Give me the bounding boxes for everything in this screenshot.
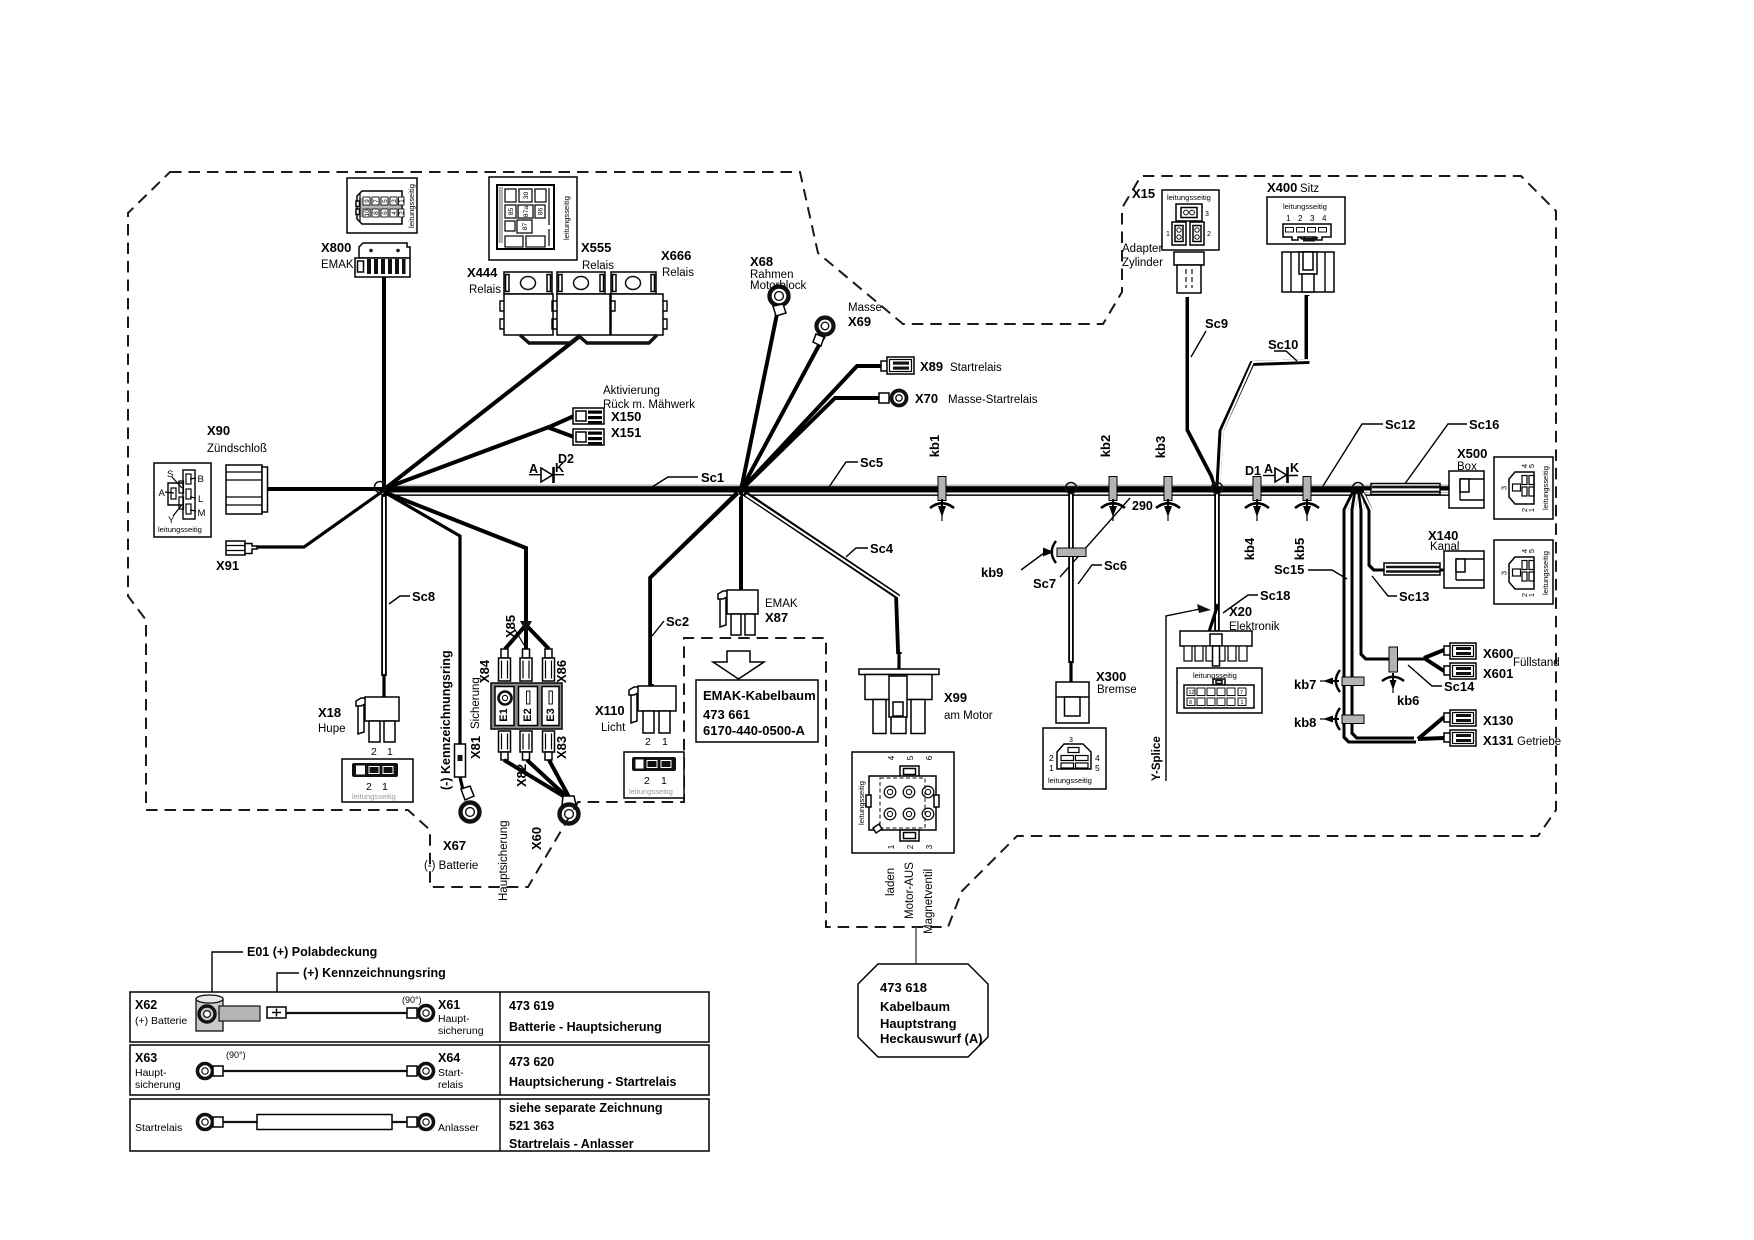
svg-text:4: 4 (1095, 753, 1100, 763)
svg-text:Sc8: Sc8 (412, 589, 435, 604)
svg-text:4: 4 (1322, 214, 1327, 223)
svg-text:kb3: kb3 (1153, 436, 1168, 458)
svg-text:E1: E1 (498, 708, 510, 721)
svg-text:473 619: 473 619 (509, 999, 554, 1013)
svg-text:kb4: kb4 (1242, 537, 1257, 560)
svg-text:E2: E2 (522, 708, 534, 721)
svg-text:1: 1 (661, 775, 667, 787)
svg-text:Sitz: Sitz (1300, 183, 1319, 195)
svg-text:X600: X600 (1483, 646, 1513, 661)
svg-text:3: 3 (925, 844, 934, 849)
svg-text:5: 5 (906, 755, 915, 760)
svg-text:kb5: kb5 (1292, 538, 1307, 560)
svg-text:X62: X62 (135, 998, 157, 1012)
svg-text:B: B (198, 474, 204, 485)
svg-text:473 620: 473 620 (509, 1055, 554, 1069)
svg-text:X60: X60 (529, 827, 544, 850)
svg-text:86: 86 (538, 208, 545, 216)
svg-text:Sc15: Sc15 (1274, 562, 1304, 577)
svg-text:Relais: Relais (469, 284, 501, 296)
svg-text:Sicherung: Sicherung (470, 677, 482, 729)
svg-text:X110: X110 (595, 703, 625, 718)
svg-text:5: 5 (1095, 763, 1100, 773)
svg-text:X86: X86 (554, 660, 569, 683)
svg-text:1: 1 (887, 844, 896, 849)
svg-text:290: 290 (1132, 499, 1153, 513)
svg-text:Licht: Licht (601, 722, 626, 734)
svg-text:leitungsseitig: leitungsseitig (1283, 202, 1327, 211)
svg-text:Batterie - Hauptsicherung: Batterie - Hauptsicherung (509, 1020, 662, 1034)
svg-text:S: S (167, 469, 173, 480)
svg-text:Start-: Start- (438, 1067, 464, 1079)
svg-text:leitungsseitig: leitungsseitig (1048, 776, 1092, 785)
svg-text:leitungsseitig: leitungsseitig (1167, 193, 1211, 202)
svg-text:Anlasser: Anlasser (438, 1122, 479, 1134)
svg-text:Sc4: Sc4 (870, 541, 894, 556)
svg-text:6: 6 (382, 211, 389, 215)
svg-text:Bremse: Bremse (1097, 684, 1137, 696)
svg-text:1: 1 (1049, 763, 1054, 773)
svg-text:6170-440-0500-A: 6170-440-0500-A (703, 723, 806, 738)
svg-text:Relais: Relais (662, 267, 694, 279)
svg-text:leitungsseitig: leitungsseitig (352, 792, 396, 801)
svg-text:X87: X87 (765, 610, 788, 625)
svg-text:laden: laden (885, 868, 897, 896)
svg-text:4: 4 (887, 755, 896, 760)
svg-text:Zündschloß: Zündschloß (207, 443, 267, 455)
svg-text:Sc9: Sc9 (1205, 316, 1228, 331)
svg-text:X666: X666 (661, 248, 691, 263)
svg-text:5: 5 (382, 199, 389, 203)
svg-text:3: 3 (391, 199, 398, 203)
svg-text:leitungsseitig: leitungsseitig (407, 184, 416, 228)
svg-text:X151: X151 (611, 425, 641, 440)
svg-text:2: 2 (1049, 753, 1054, 763)
svg-text:473 661: 473 661 (703, 707, 750, 722)
svg-text:Sc5: Sc5 (860, 455, 883, 470)
svg-text:521 363: 521 363 (509, 1119, 554, 1133)
svg-text:X444: X444 (467, 265, 498, 280)
svg-text:X68: X68 (750, 254, 773, 269)
svg-text:EMAK: EMAK (321, 259, 354, 271)
svg-text:sicherung: sicherung (135, 1079, 181, 1091)
svg-text:Adapter: Adapter (1122, 243, 1162, 255)
svg-text:30: 30 (523, 192, 530, 200)
svg-text:Zylinder: Zylinder (1122, 257, 1163, 269)
svg-text:Hauptsicherung - Startrelais: Hauptsicherung - Startrelais (509, 1075, 676, 1089)
svg-text:Sc18: Sc18 (1260, 588, 1290, 603)
svg-text:EMAK-Kabelbaum: EMAK-Kabelbaum (703, 688, 816, 703)
svg-text:K: K (1290, 461, 1299, 475)
svg-text:X15: X15 (1132, 186, 1155, 201)
svg-text:X91: X91 (216, 558, 239, 573)
svg-text:8: 8 (1189, 700, 1192, 706)
svg-text:9: 9 (364, 199, 371, 203)
svg-text:5: 5 (1527, 464, 1536, 468)
svg-text:Füllstand: Füllstand (1513, 657, 1560, 669)
svg-text:Startrelais: Startrelais (950, 362, 1002, 374)
svg-text:X67: X67 (443, 838, 466, 853)
svg-text:X20: X20 (1229, 604, 1252, 619)
svg-text:E01 (+) Polabdeckung: E01 (+) Polabdeckung (247, 945, 377, 959)
svg-text:kb8: kb8 (1294, 715, 1316, 730)
svg-text:Sc14: Sc14 (1444, 679, 1475, 694)
svg-text:EMAK: EMAK (765, 598, 798, 610)
svg-text:2: 2 (645, 736, 651, 748)
svg-text:6: 6 (925, 755, 934, 760)
svg-text:2: 2 (1298, 214, 1303, 223)
svg-text:Sc7: Sc7 (1033, 576, 1056, 591)
svg-text:1: 1 (1241, 700, 1244, 706)
svg-text:1: 1 (662, 736, 668, 748)
svg-text:87a: 87a (523, 206, 530, 218)
svg-text:A: A (529, 462, 538, 476)
svg-text:X64: X64 (438, 1051, 460, 1065)
svg-text:Heckauswurf (A): Heckauswurf (A) (880, 1031, 983, 1046)
svg-text:1: 1 (387, 746, 393, 758)
svg-text:siehe separate Zeichnung: siehe separate Zeichnung (509, 1101, 663, 1115)
svg-text:2: 2 (399, 211, 406, 215)
svg-text:K: K (555, 461, 564, 475)
svg-text:3: 3 (1500, 486, 1509, 490)
svg-text:leitungsseitig: leitungsseitig (158, 525, 202, 534)
svg-text:7: 7 (373, 199, 380, 203)
svg-text:Hauptstrang: Hauptstrang (880, 1016, 957, 1031)
svg-text:Sc10: Sc10 (1268, 337, 1298, 352)
svg-text:X90: X90 (207, 423, 230, 438)
svg-text:Hauptsicherung: Hauptsicherung (498, 820, 510, 901)
svg-text:X500: X500 (1457, 446, 1487, 461)
svg-text:Startrelais: Startrelais (135, 1122, 182, 1134)
svg-text:M: M (198, 508, 206, 519)
svg-text:(+) Kennzeichnungsring: (+) Kennzeichnungsring (303, 966, 446, 980)
svg-text:1: 1 (1166, 231, 1170, 238)
svg-text:sicherung: sicherung (438, 1025, 484, 1037)
svg-text:kb9: kb9 (981, 565, 1003, 580)
svg-text:X99: X99 (944, 690, 967, 705)
svg-text:Aktivierung: Aktivierung (603, 385, 660, 397)
svg-text:leitungsseitig: leitungsseitig (629, 787, 673, 796)
svg-text:12: 12 (1189, 690, 1195, 696)
svg-text:8: 8 (373, 211, 380, 215)
svg-text:X800: X800 (321, 240, 351, 255)
svg-text:Getriebe: Getriebe (1517, 736, 1561, 748)
svg-text:X63: X63 (135, 1051, 157, 1065)
svg-text:10: 10 (364, 209, 371, 217)
svg-text:Kabelbaum: Kabelbaum (880, 999, 950, 1014)
svg-text:Haupt-: Haupt- (135, 1067, 167, 1079)
svg-text:X83: X83 (554, 736, 569, 759)
svg-text:X69: X69 (848, 314, 871, 329)
svg-text:Motorblock: Motorblock (750, 280, 806, 292)
svg-text:(-) Batterie: (-) Batterie (424, 860, 478, 872)
svg-text:Y-Splice: Y-Splice (1151, 736, 1163, 781)
svg-text:kb2: kb2 (1098, 435, 1113, 457)
svg-text:1: 1 (1527, 508, 1536, 512)
svg-text:5: 5 (1527, 549, 1536, 553)
svg-text:X555: X555 (581, 240, 611, 255)
svg-text:2: 2 (644, 775, 650, 787)
svg-text:85: 85 (508, 208, 515, 216)
svg-text:3: 3 (1310, 214, 1315, 223)
svg-text:X150: X150 (611, 409, 641, 424)
svg-text:D1: D1 (1245, 464, 1261, 478)
svg-text:2: 2 (1207, 231, 1211, 238)
svg-text:Masse: Masse (848, 302, 882, 314)
svg-text:X130: X130 (1483, 713, 1513, 728)
svg-text:L: L (198, 494, 203, 505)
svg-text:X400: X400 (1267, 180, 1297, 195)
svg-text:Sc2: Sc2 (666, 614, 689, 629)
svg-text:leitungsseitig: leitungsseitig (562, 196, 571, 240)
svg-text:7: 7 (1240, 690, 1243, 696)
svg-text:(-) Kennzeichnungsring: (-) Kennzeichnungsring (439, 650, 453, 790)
svg-text:Hupe: Hupe (318, 723, 346, 735)
svg-text:leitungsseitig: leitungsseitig (1541, 466, 1550, 510)
svg-text:A: A (1264, 462, 1273, 476)
svg-text:Sc12: Sc12 (1385, 417, 1415, 432)
svg-text:87: 87 (522, 223, 529, 231)
svg-text:Magnetventil: Magnetventil (923, 869, 935, 934)
svg-text:E3: E3 (545, 708, 557, 721)
svg-text:leitungsseitig: leitungsseitig (857, 781, 866, 825)
svg-text:Startrelais - Anlasser: Startrelais - Anlasser (509, 1137, 634, 1151)
svg-text:4: 4 (391, 211, 398, 215)
svg-text:X61: X61 (438, 998, 460, 1012)
svg-text:X300: X300 (1096, 669, 1126, 684)
svg-text:3: 3 (1069, 737, 1073, 744)
svg-text:Haupt-: Haupt- (438, 1013, 470, 1025)
svg-text:A: A (159, 488, 166, 499)
svg-text:X70: X70 (915, 391, 938, 406)
svg-text:X89: X89 (920, 359, 943, 374)
svg-text:kb6: kb6 (1397, 693, 1419, 708)
svg-text:kb1: kb1 (927, 435, 942, 457)
svg-text:Motor-AUS: Motor-AUS (904, 862, 916, 919)
svg-text:Sc6: Sc6 (1104, 558, 1127, 573)
svg-text:1: 1 (1286, 214, 1291, 223)
svg-text:leitungsseitig: leitungsseitig (1541, 551, 1550, 595)
svg-text:(+) Batterie: (+) Batterie (135, 1015, 187, 1027)
svg-text:X601: X601 (1483, 666, 1513, 681)
svg-text:Sc16: Sc16 (1469, 417, 1499, 432)
svg-text:(90°): (90°) (226, 1050, 246, 1060)
svg-text:relais: relais (438, 1079, 463, 1091)
svg-text:473 618: 473 618 (880, 980, 927, 995)
svg-text:am Motor: am Motor (944, 710, 993, 722)
svg-text:X18: X18 (318, 705, 341, 720)
svg-text:2: 2 (371, 746, 377, 758)
svg-text:kb7: kb7 (1294, 677, 1316, 692)
svg-text:Masse-Startrelais: Masse-Startrelais (948, 394, 1038, 406)
svg-text:3: 3 (1205, 211, 1209, 218)
svg-text:Sc1: Sc1 (701, 470, 724, 485)
svg-text:Sc13: Sc13 (1399, 589, 1429, 604)
svg-text:X131: X131 (1483, 733, 1513, 748)
svg-text:2: 2 (906, 844, 915, 849)
svg-text:1: 1 (1527, 593, 1536, 597)
svg-text:3: 3 (1500, 571, 1509, 575)
svg-text:X81: X81 (468, 736, 483, 759)
svg-text:(90°): (90°) (402, 995, 422, 1005)
svg-text:1: 1 (399, 199, 406, 203)
svg-text:X85: X85 (503, 615, 518, 638)
svg-text:Relais: Relais (582, 260, 614, 272)
